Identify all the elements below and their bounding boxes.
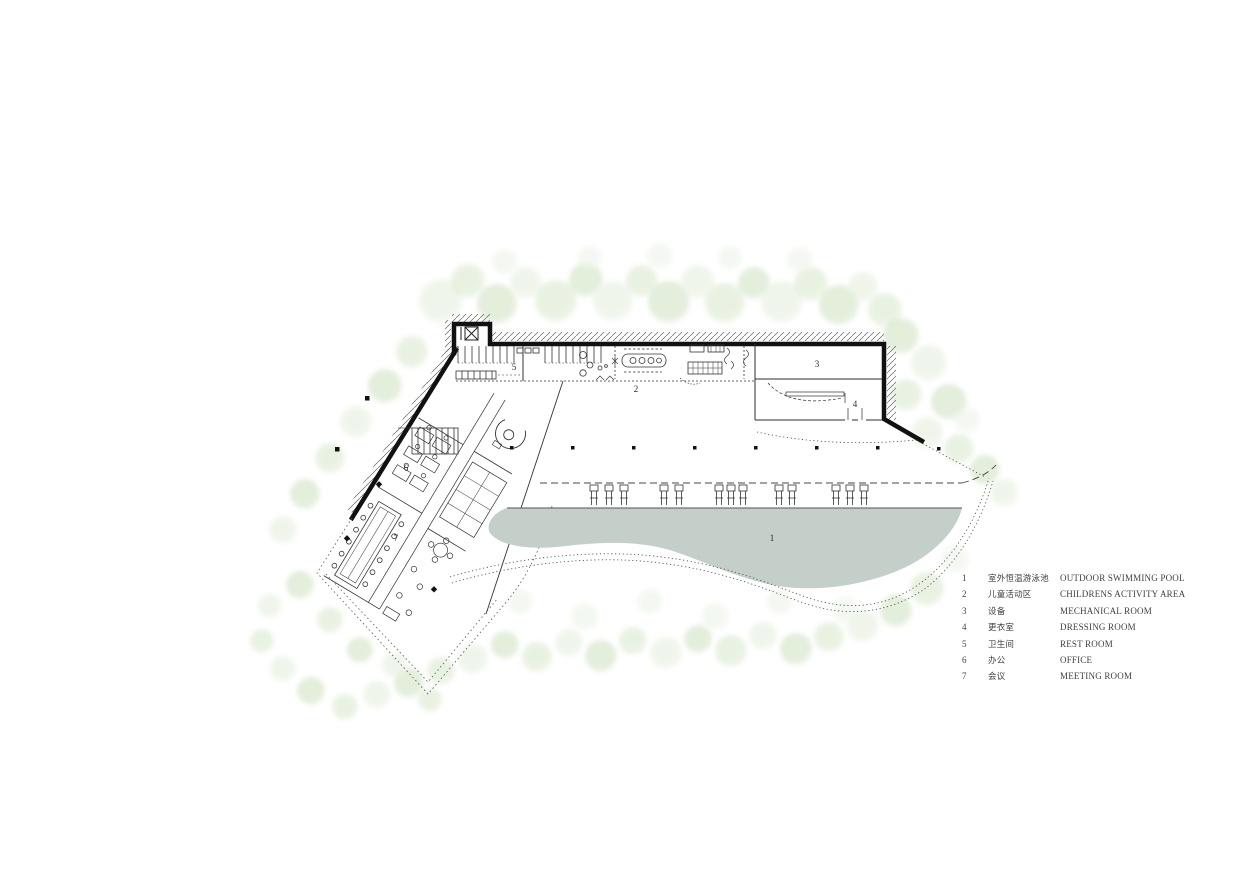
deck-chair: [605, 485, 613, 505]
deck-chair: [727, 485, 735, 505]
deck-lines: [540, 432, 996, 483]
legend-chinese-label: 儿童活动区: [988, 588, 1060, 600]
legend-number: 6: [962, 655, 988, 665]
mechanical-room-label: 3: [815, 359, 820, 369]
floor-plan-sheet: 1234567 1 室外恒温游泳池 OUTDOOR SWIMMING POOL …: [0, 0, 1246, 881]
deck-chair: [832, 485, 840, 505]
swimming-pool: [489, 508, 962, 588]
deck-chair: [788, 485, 796, 505]
meeting-table: [328, 498, 407, 593]
dressing-room-label: 4: [853, 399, 858, 409]
legend-chinese-label: 办公: [988, 654, 1060, 666]
office-label: 6: [404, 463, 409, 473]
deck-chair: [620, 485, 628, 505]
legend-chinese-label: 卫生间: [988, 638, 1060, 650]
rest-room-label: 5: [512, 362, 517, 372]
legend-number: 5: [962, 639, 988, 649]
legend-english-label: OFFICE: [1060, 655, 1092, 665]
pool-water: [489, 508, 962, 588]
legend-english-label: CHILDRENS ACTIVITY AREA: [1060, 589, 1185, 599]
deck-chair: [660, 485, 668, 505]
legend-row: 6 办公 OFFICE: [962, 654, 1185, 670]
legend-number: 7: [962, 671, 988, 681]
legend-chinese-label: 会议: [988, 670, 1060, 682]
legend-number: 2: [962, 589, 988, 599]
outdoor-swimming-pool-label: 1: [770, 533, 775, 543]
lift-icon: [461, 327, 478, 340]
deck-chair: [860, 485, 868, 505]
round-table-set: [383, 530, 460, 630]
meeting-room-label: 7: [394, 533, 399, 543]
lounge-sofa: [488, 417, 529, 457]
legend-english-label: MEETING ROOM: [1060, 671, 1132, 681]
legend-row: 2 儿童活动区 CHILDRENS ACTIVITY AREA: [962, 588, 1185, 604]
legend-chinese-label: 更衣室: [988, 621, 1060, 633]
deck-chair: [739, 485, 747, 505]
legend-row: 7 会议 MEETING ROOM: [962, 670, 1185, 686]
legend-number: 1: [962, 573, 988, 583]
legend-number: 3: [962, 606, 988, 616]
deck-chair: [846, 485, 854, 505]
legend-row: 1 室外恒温游泳池 OUTDOOR SWIMMING POOL: [962, 572, 1185, 588]
childrens-activity-furniture: [580, 345, 749, 384]
restroom-stalls: [456, 346, 601, 381]
legend-row: 5 卫生间 REST ROOM: [962, 638, 1185, 654]
childrens-activity-area-label: 2: [634, 384, 639, 394]
deck-chairs: [590, 485, 868, 505]
exterior-walls: [352, 324, 922, 518]
legend-english-label: OUTDOOR SWIMMING POOL: [1060, 573, 1185, 583]
deck-chair: [590, 485, 598, 505]
legend-chinese-label: 设备: [988, 605, 1060, 617]
deck-chair: [675, 485, 683, 505]
legend: 1 室外恒温游泳池 OUTDOOR SWIMMING POOL 2 儿童活动区 …: [962, 572, 1185, 687]
hall-edges: [456, 381, 755, 614]
legend-row: 3 设备 MECHANICAL ROOM: [962, 605, 1185, 621]
legend-english-label: DRESSING ROOM: [1060, 622, 1136, 632]
legend-english-label: REST ROOM: [1060, 639, 1113, 649]
legend-row: 4 更衣室 DRESSING ROOM: [962, 621, 1185, 637]
deck-chair: [715, 485, 723, 505]
deck-chair: [775, 485, 783, 505]
legend-english-label: MECHANICAL ROOM: [1060, 606, 1152, 616]
legend-chinese-label: 室外恒温游泳池: [988, 572, 1060, 584]
mechanical-dressing-rooms: [755, 344, 882, 420]
floor-plan-drawing: 1234567: [0, 0, 1246, 881]
legend-number: 4: [962, 622, 988, 632]
